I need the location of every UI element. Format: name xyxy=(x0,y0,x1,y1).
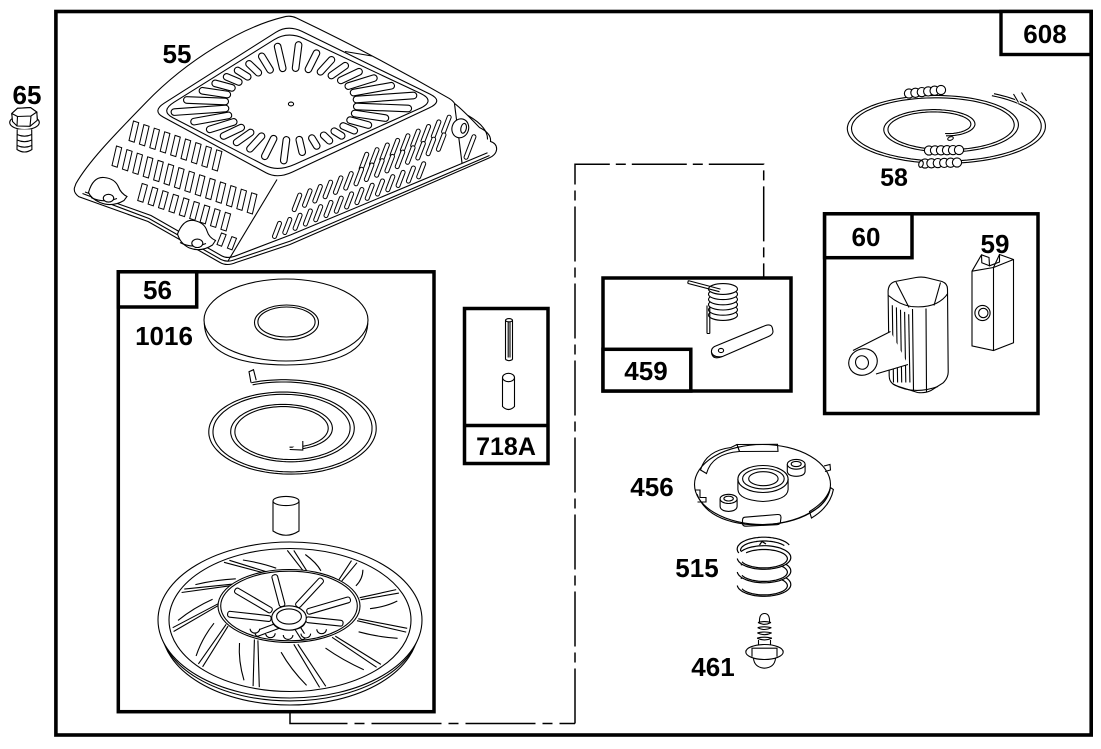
svg-text:718A: 718A xyxy=(476,433,536,461)
svg-text:1016: 1016 xyxy=(135,321,193,351)
svg-text:56: 56 xyxy=(143,275,172,305)
svg-text:58: 58 xyxy=(880,164,908,192)
svg-text:55: 55 xyxy=(163,39,192,69)
svg-text:65: 65 xyxy=(13,80,42,110)
svg-text:459: 459 xyxy=(624,356,667,386)
svg-text:461: 461 xyxy=(691,652,734,682)
svg-text:456: 456 xyxy=(630,472,673,502)
svg-text:515: 515 xyxy=(675,553,718,583)
svg-text:608: 608 xyxy=(1023,19,1066,49)
svg-text:59: 59 xyxy=(981,229,1010,259)
svg-text:60: 60 xyxy=(852,222,881,252)
